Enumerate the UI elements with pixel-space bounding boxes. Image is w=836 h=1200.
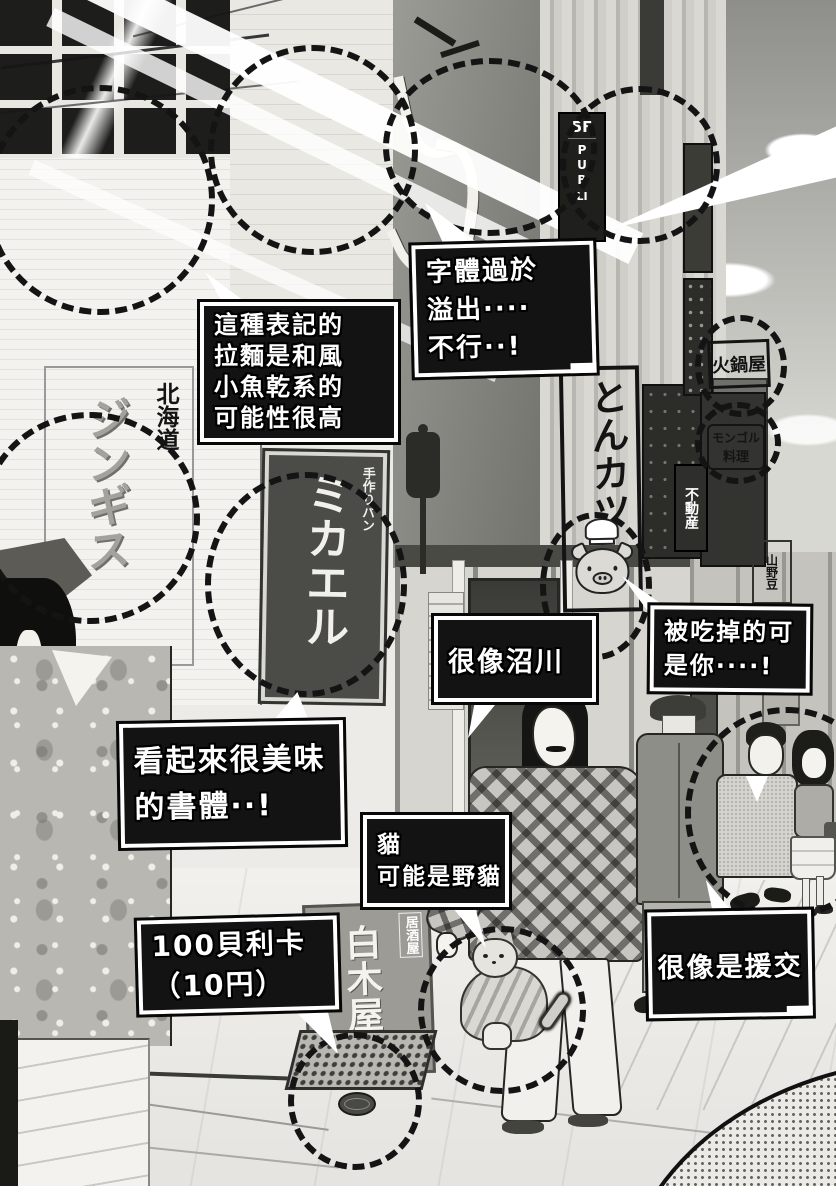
note-line: 的書體··! — [134, 782, 331, 831]
note-delicious-font: 看起來很美味 的書體··! — [119, 720, 345, 848]
note-line: 可能是野貓 — [377, 861, 495, 893]
sign-izakaya-type: 居酒屋 — [398, 912, 423, 958]
lantern-pole — [420, 498, 426, 574]
sign-izakaya-text: 白木屋 — [334, 923, 390, 1033]
note-belica-coin: 100貝利卡 （10円） — [137, 915, 339, 1014]
jacket-seam — [678, 743, 680, 898]
dashed-circle-cat — [418, 926, 586, 1094]
note-font-overflow: 字體過於 溢出···· 不行··! — [411, 241, 596, 378]
longhair-man-mustache — [546, 746, 566, 752]
manga-page: らぁめん 博多 とんこつ 辻 5F PUB LI パパのカレー屋 カラオケ 火鍋… — [0, 0, 836, 1200]
note-notch — [787, 1006, 813, 1016]
sign-yamano: 山野豆 — [752, 540, 792, 604]
dashed-circle-mongolian — [695, 402, 781, 484]
note-ramen-style: 這種表記的 拉麵是和風 小魚乾系的 可能性很高 — [200, 302, 398, 442]
page-margin — [0, 1186, 836, 1200]
dashed-circle-coin — [288, 1032, 422, 1170]
sandal — [568, 1114, 608, 1127]
note-enjo: 很像是援交 — [647, 910, 813, 1019]
sign-tonkatsu-text: とんカツ — [579, 375, 637, 533]
sign-pole — [640, 0, 664, 95]
dashed-circle-michael — [205, 472, 407, 697]
note-eaten: 被吃掉的可 是你····! — [650, 605, 811, 692]
note-line: 100貝利卡 — [151, 923, 324, 967]
note-line: 可能性很高 — [214, 403, 384, 434]
longhair-man-face — [532, 706, 576, 768]
note-line: 是你····! — [664, 648, 796, 683]
note-line: （10円） — [152, 963, 325, 1007]
sign-fudosan: 不動産 — [674, 464, 708, 552]
sign-fudosan-text: 不動産 — [681, 487, 701, 529]
note-line: 不行··! — [428, 326, 583, 368]
note-line: 很像是援交 — [657, 943, 803, 985]
foreground-man-pants — [0, 1038, 150, 1200]
note-line: 字體過於 — [426, 250, 581, 292]
note-line: 小魚乾系的 — [214, 372, 384, 403]
note-line: 這種表記的 — [214, 310, 384, 341]
lantern-lamp — [406, 432, 440, 498]
foreground-man — [0, 538, 185, 1200]
note-notch — [570, 363, 596, 374]
note-stray-cat: 貓 可能是野貓 — [363, 815, 509, 907]
note-line: 看起來很美味 — [133, 736, 330, 785]
note-line: 拉麵是和風 — [214, 341, 384, 372]
sandal — [502, 1120, 544, 1134]
dashed-circle-papa-curry — [560, 86, 720, 244]
note-line: 貓 — [377, 829, 495, 861]
street-lantern — [404, 424, 444, 574]
note-line: 被吃掉的可 — [664, 614, 796, 649]
street-pole — [0, 1020, 18, 1200]
note-line: 很像沼川 — [448, 640, 564, 679]
note-numakawa: 很像沼川 — [434, 616, 596, 702]
sign-yamano-text: 山野豆 — [764, 554, 781, 590]
note-line: 溢出···· — [427, 288, 582, 330]
